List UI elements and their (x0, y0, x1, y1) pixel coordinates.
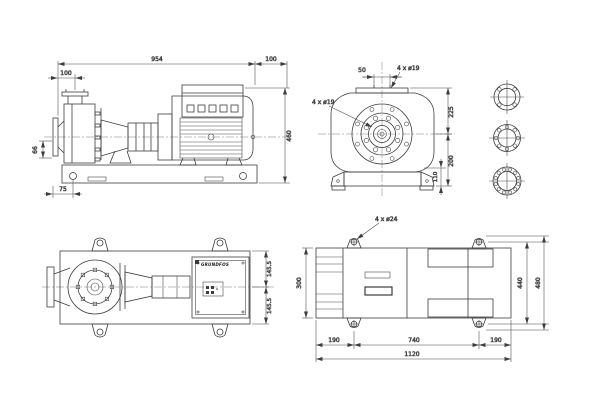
motor-pad-top (428, 249, 493, 267)
baseplate-ribs (316, 257, 343, 309)
dim-center-to-edge-bottom: 145.5 (267, 298, 273, 314)
side-elevation-view: 954 100 100 460 66 75 (32, 56, 293, 198)
flange-detail-3 (489, 163, 525, 199)
dim-plate-width: 300 (296, 277, 303, 289)
grundfos-logo-icon (195, 260, 199, 264)
anchor-lugs (347, 238, 486, 328)
pump-dimensional-drawing: 954 100 100 460 66 75 (0, 0, 600, 400)
dim-overall-width: 480 (535, 277, 542, 289)
flange-detail-views (489, 80, 525, 199)
baseplate-slot-1 (365, 272, 390, 278)
casing-bolts (95, 112, 100, 161)
plan-pump-geometry (47, 238, 250, 337)
callout-top-flange-holes: 4 x ø19 (397, 65, 420, 72)
dim-overall-baseplate-length: 1120 (404, 351, 419, 358)
baseplate-geometry (316, 238, 511, 328)
dim-suction-drop: 66 (32, 146, 39, 154)
dim-foot-height: 110 (433, 171, 439, 182)
end-pump-geometry (331, 85, 434, 190)
flange-detail-2 (489, 120, 525, 156)
terminal-box-vents (187, 105, 238, 112)
dim-center-to-base: 200 (448, 155, 455, 167)
dim-center-to-edge-top: 145.5 (267, 261, 273, 277)
side-pump-geometry (53, 85, 257, 183)
end-view: 50 4 x ø19 4 x ø19 225 200 110 (312, 62, 455, 196)
dim-rear-length: 100 (265, 56, 277, 63)
plan-baseplate-view: 4 x ø24 300 440 480 190 740 190 1120 (296, 216, 549, 362)
side-dimensions: 954 100 100 460 66 75 (32, 56, 293, 198)
callout-anchor-holes: 4 x ø24 (375, 216, 398, 223)
dim-hole-span-length: 740 (408, 337, 420, 344)
dim-overall-height: 460 (286, 130, 293, 142)
plan-pump-dimensions: 145.5 145.5 (252, 251, 273, 324)
brand-wordmark: GRUNDFOS (201, 262, 229, 267)
dim-port-to-face: 100 (60, 70, 72, 77)
dim-end-margin-right: 190 (490, 337, 502, 344)
motor-pad-bottom (428, 299, 493, 317)
callout-suction-flange-holes: 4 x ø19 (312, 99, 335, 106)
dim-end-margin-left: 190 (328, 337, 340, 344)
flange-detail-1 (490, 80, 524, 114)
plan-pump-view: GRUNDFOS 145.5 145.5 (42, 238, 275, 337)
dim-port-offset: 50 (358, 67, 366, 74)
motor-fins (180, 118, 242, 158)
dim-center-to-top: 225 (448, 106, 455, 118)
dim-overall-length: 954 (151, 56, 163, 63)
dim-face-to-foot: 75 (59, 186, 67, 193)
baseplate-slot-2 (365, 287, 392, 295)
dim-hole-span-width: 440 (517, 277, 524, 289)
